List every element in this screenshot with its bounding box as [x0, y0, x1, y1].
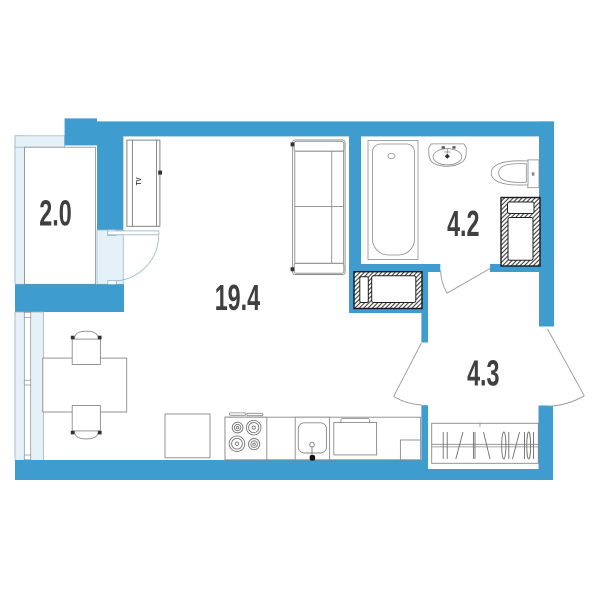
svg-text:4.3: 4.3	[467, 355, 499, 394]
svg-text:4.2: 4.2	[447, 205, 479, 244]
svg-text:TV: TV	[136, 177, 144, 185]
svg-text:19.4: 19.4	[215, 279, 261, 318]
svg-text:2.0: 2.0	[39, 194, 71, 233]
